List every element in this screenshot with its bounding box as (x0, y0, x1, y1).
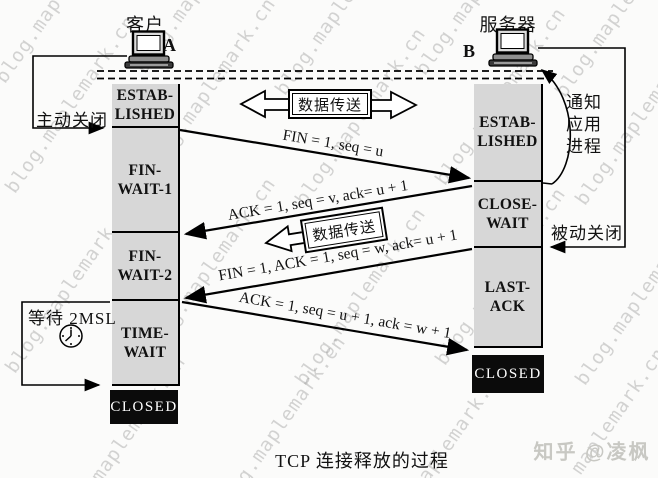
client-state-fin-wait-1: FIN- WAIT-1 (112, 128, 178, 233)
credit-watermark: 知乎 @凌枫 (533, 436, 650, 465)
server-computer-icon (484, 28, 540, 73)
diagram-title: TCP 连接释放的过程 (275, 447, 449, 473)
client-state-established: ESTAB- LISHED (112, 84, 178, 128)
client-host-label: A (163, 35, 176, 56)
data-transfer-box-top: 数据传送 (288, 89, 372, 119)
client-state-fin-wait-2: FIN- WAIT-2 (112, 233, 178, 301)
client-timeline: ESTAB- LISHED FIN- WAIT-1 FIN- WAIT-2 TI… (112, 84, 180, 386)
server-timeline: ESTAB- LISHED CLOSE- WAIT LAST- ACK (474, 84, 543, 348)
active-close-label: 主动关闭 (36, 106, 108, 131)
server-state-established: ESTAB- LISHED (474, 84, 541, 182)
client-state-time-wait: TIME- WAIT (112, 301, 178, 386)
notify-app-label: 通知 应用 进程 (566, 92, 602, 158)
tcp-release-diagram: blog.maplemark.cnblog.maplemark.cnblog.m… (0, 0, 658, 478)
passive-close-label: 被动关闭 (551, 219, 623, 244)
server-host-label: B (463, 41, 475, 62)
server-state-closed: CLOSED (472, 355, 544, 393)
data-transfer-box-top-inner: 数据传送 (292, 93, 368, 115)
client-state-closed: CLOSED (110, 390, 178, 424)
server-state-close-wait: CLOSE- WAIT (474, 182, 541, 248)
server-state-last-ack: LAST- ACK (474, 248, 541, 348)
wait-2msl-label: 等待 2MSL (28, 304, 117, 329)
